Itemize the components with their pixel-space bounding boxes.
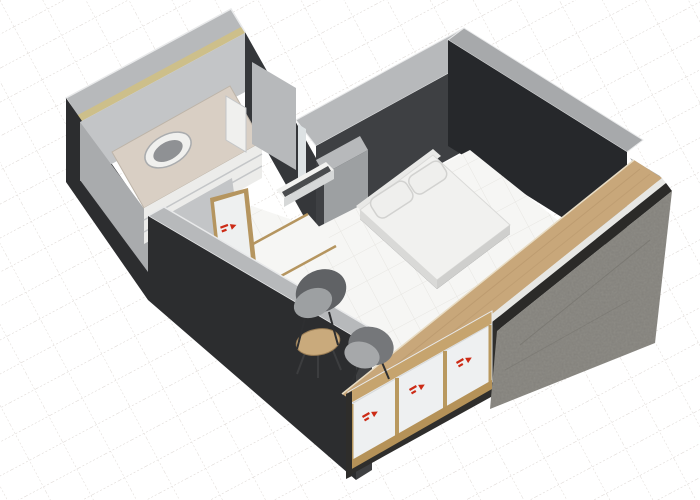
sliding-door-jamb <box>346 391 352 479</box>
floorplan-3d-render <box>0 0 700 500</box>
render-canvas <box>0 0 700 500</box>
